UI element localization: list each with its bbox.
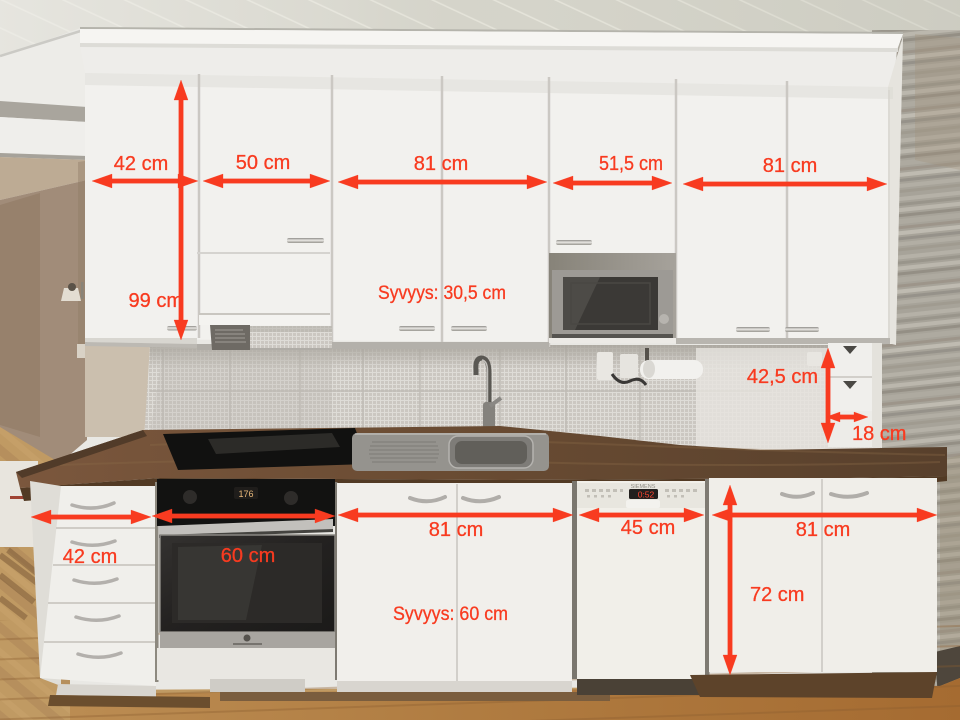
svg-text:60 cm: 60 cm bbox=[221, 545, 275, 567]
svg-text:72 cm: 72 cm bbox=[750, 584, 804, 606]
svg-text:51,5 cm: 51,5 cm bbox=[599, 153, 663, 175]
svg-text:45 cm: 45 cm bbox=[621, 517, 675, 539]
svg-text:99 cm: 99 cm bbox=[129, 290, 183, 312]
svg-text:81 cm: 81 cm bbox=[414, 153, 468, 175]
svg-text:50 cm: 50 cm bbox=[236, 152, 290, 174]
svg-text:Syvyys: 30,5 cm: Syvyys: 30,5 cm bbox=[378, 282, 506, 304]
svg-text:42,5 cm: 42,5 cm bbox=[747, 366, 818, 388]
svg-text:81 cm: 81 cm bbox=[763, 155, 817, 177]
svg-text:42 cm: 42 cm bbox=[63, 546, 117, 568]
svg-text:18 cm: 18 cm bbox=[852, 423, 906, 445]
svg-text:81 cm: 81 cm bbox=[796, 519, 850, 541]
svg-text:81 cm: 81 cm bbox=[429, 519, 483, 541]
svg-text:176: 176 bbox=[238, 489, 253, 499]
svg-text:42 cm: 42 cm bbox=[114, 153, 168, 175]
svg-text:Syvyys: 60 cm: Syvyys: 60 cm bbox=[393, 603, 508, 625]
svg-text:0:52: 0:52 bbox=[638, 490, 655, 500]
